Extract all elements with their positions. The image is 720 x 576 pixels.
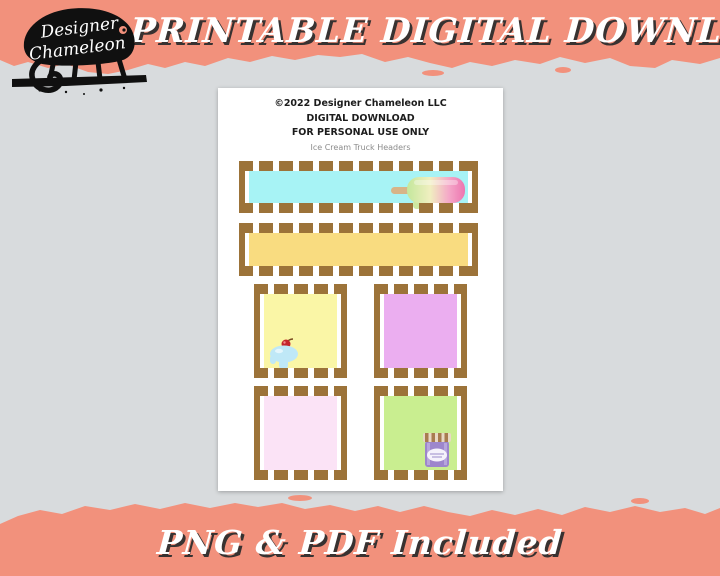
designer-chameleon-logo: Designer Chameleon <box>6 0 154 100</box>
printable-page-preview: ©2022 Designer Chameleon LLC DIGITAL DOW… <box>218 88 503 491</box>
ice-cream-tub-icon <box>422 433 452 469</box>
square-frame-light-green <box>374 386 467 480</box>
header-fill-gold <box>249 233 468 266</box>
header-frame-gold <box>239 223 478 276</box>
product-title: Ice Cream Truck Headers <box>218 143 503 152</box>
ice-cream-sundae-icon <box>265 335 303 373</box>
square-frame-pale-pink <box>254 386 347 480</box>
listing-image: { "background_color": "#D8DBDD", "top_ba… <box>0 0 720 576</box>
page-header-text: ©2022 Designer Chameleon LLC DIGITAL DOW… <box>218 97 503 141</box>
popsicle-icon <box>390 174 466 210</box>
square-fill-lavender <box>384 294 457 368</box>
header-fill-cyan <box>249 171 468 203</box>
square-fill-light-green <box>384 396 457 470</box>
usage-line-1: DIGITAL DOWNLOAD <box>218 112 503 127</box>
square-frame-lavender <box>374 284 467 378</box>
usage-line-2: FOR PERSONAL USE ONLY <box>218 126 503 141</box>
square-frame-pale-yellow <box>254 284 347 378</box>
copyright-line: ©2022 Designer Chameleon LLC <box>218 97 503 112</box>
square-fill-pale-yellow <box>264 294 337 368</box>
bottom-banner-title: PNG & PDF Included <box>0 523 720 562</box>
top-banner-title: PRINTABLE DIGITAL DOWNLOAD <box>129 11 602 51</box>
header-frame-cyan <box>239 161 478 213</box>
square-fill-pale-pink <box>264 396 337 470</box>
